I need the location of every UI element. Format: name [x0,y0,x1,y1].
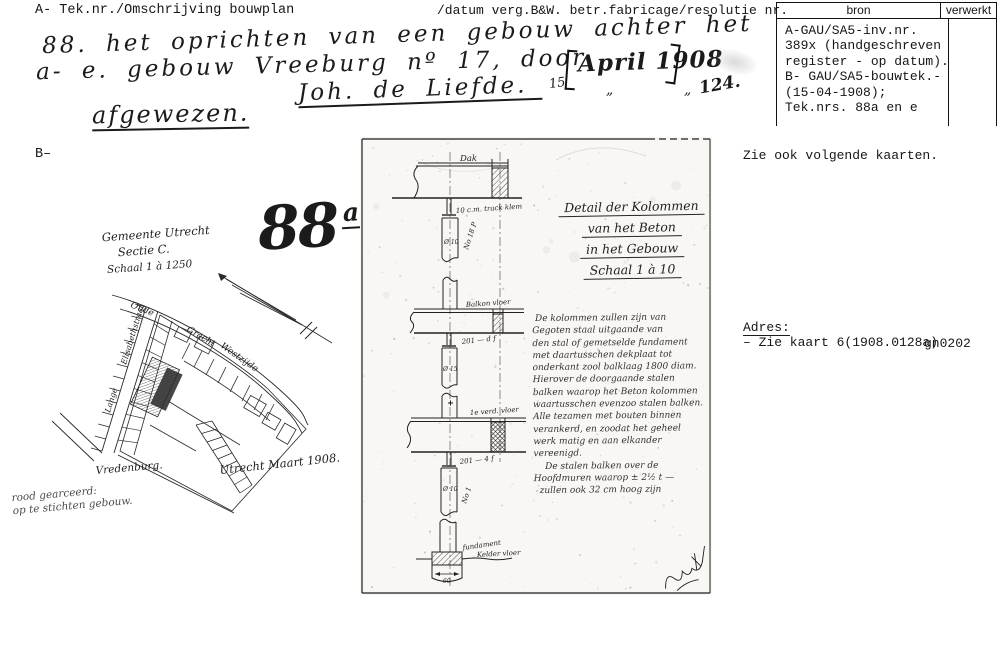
header-left: A- Tek.nr./Omschrijving bouwplan [35,3,294,18]
resolution-number: 124. [698,72,742,99]
bracket-left [565,50,578,91]
text-line: Tek.nrs. 88a en e [785,100,948,115]
street-label-elisabeth: Elisabethstraat [119,303,146,367]
section-b-label: B– [35,147,51,162]
label-d15: Ø 15 [442,366,458,373]
text-line: 389x (handgeschreven [785,38,948,53]
label-d10a: Ø 10 [443,239,459,246]
date-bracketed: April 1908 [578,45,724,77]
text-line: van het Beton [582,219,682,238]
text-line: A-GAU/SA5-inv.nr. [785,23,948,38]
source-table-header: bron verwerkt [776,3,997,19]
text-line: register - op datum). [785,54,948,69]
label-d10b: Ø 10 [442,486,458,493]
pencil-smudge [710,45,760,79]
ditto-mark-2: „ [684,82,691,98]
bron-cell: A-GAU/SA5-inv.nr.389x (handgeschrevenreg… [776,19,949,126]
col-bron: bron [776,3,941,18]
text-line: zullen ook 32 cm hoog zijn [534,483,739,497]
text-line: in het Gebouw [580,240,684,259]
drawing-title-block: Detail der Kolommenvan het Betonin het G… [551,198,712,285]
source-table: bron verwerkt A-GAU/SA5-inv.nr.389x (han… [776,2,997,127]
compass-needle-icon [218,273,332,343]
address-label: Adres: [743,320,790,336]
verwerkt-cell [949,19,997,126]
ditto-mark-1: „ [606,82,613,98]
street-label-lange: Lange [103,387,119,415]
text-line: Schaal 1 à 10 [583,261,681,280]
label-dim: 60 [443,578,451,585]
text-line: B- GAU/SA5-bouwtek.- [785,69,948,84]
decision-text: afgewezen. [92,99,250,132]
map-title-2: Sectie C. [117,242,170,260]
street-lines [52,295,308,513]
col-verwerkt: verwerkt [941,3,997,18]
source-table-body: A-GAU/SA5-inv.nr.389x (handgeschrevenreg… [776,19,997,126]
map-date: Utrecht Maart 1908. [219,450,341,477]
label-dak: Dak [459,154,477,164]
archive-card: A- Tek.nr./Omschrijving bouwplan /datum … [0,0,1000,646]
subject-building [130,357,182,417]
drawing-paragraph: De kolommen zullen zijn vanGegoten staal… [532,311,739,498]
text-line: Detail der Kolommen [558,198,705,218]
code-gn: gn0202 [924,336,971,351]
street-label-vredenburg: Vredenburg. [95,459,163,477]
map-title-3: Schaal 1 à 1250 [107,258,193,276]
map-labels: Gemeente Utrecht Sectie C. Schaal 1 à 12… [95,223,340,477]
address-value: – Zie kaart 6(1908.0128a) [743,335,938,350]
see-also-note: Zie ook volgende kaarten. [743,148,938,163]
text-line: (15-04-1908); [785,85,948,100]
map-title-1: Gemeente Utrecht [101,223,210,245]
